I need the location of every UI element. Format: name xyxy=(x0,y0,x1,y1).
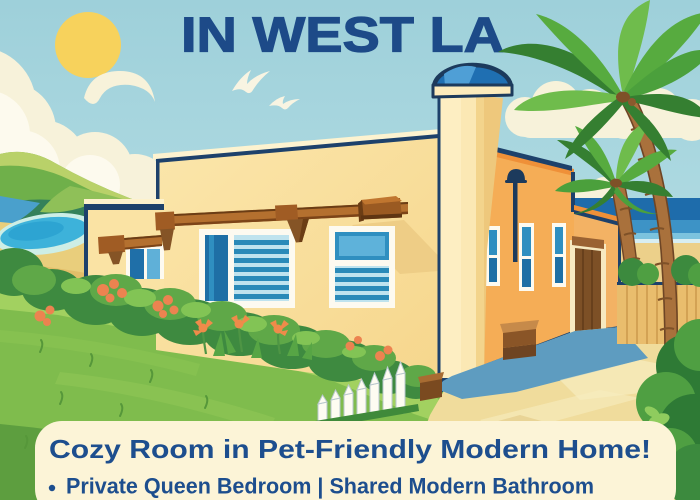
svg-text:IN WEST LA: IN WEST LA xyxy=(181,9,504,63)
svg-text:Private Queen Bedroom | Shared: Private Queen Bedroom | Shared Modern Ba… xyxy=(66,474,594,499)
svg-text:Cozy Room in Pet-Friendly Mode: Cozy Room in Pet-Friendly Modern Home! xyxy=(49,434,651,464)
